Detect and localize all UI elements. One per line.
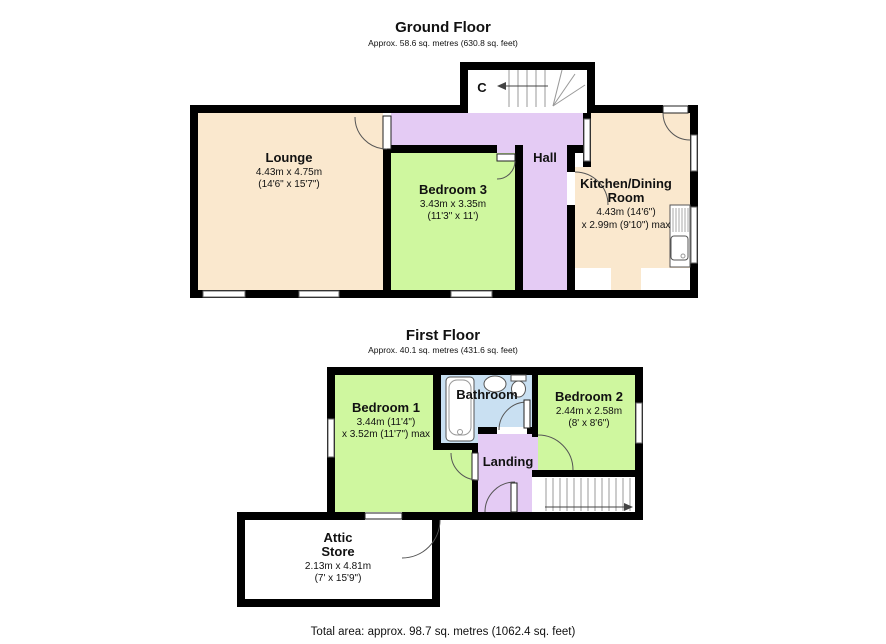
kitchen-room bbox=[591, 113, 690, 167]
window bbox=[691, 135, 697, 171]
bedroom-1-label: Bedroom 1 bbox=[352, 400, 420, 415]
attic-dims-imperial: (7' x 15'9") bbox=[315, 573, 362, 584]
bedroom-3-dims-imperial: (11'3" x 11') bbox=[428, 211, 479, 222]
bedroom-1-dims-imperial: x 3.52m (11'7") max bbox=[342, 429, 430, 440]
ground-floor-subtitle: Approx. 58.6 sq. metres (630.8 sq. feet) bbox=[368, 38, 518, 48]
door-leaf bbox=[524, 400, 530, 428]
lounge-dims-imperial: (14'6" x 15'7") bbox=[258, 179, 320, 190]
lounge-label: Lounge bbox=[266, 150, 313, 165]
first-floor-subtitle: Approx. 40.1 sq. metres (431.6 sq. feet) bbox=[368, 345, 518, 355]
attic-label-line2: Store bbox=[321, 544, 354, 559]
first-floor-title: First Floor bbox=[406, 327, 480, 344]
floorplan-svg: Ground Floor Approx. 58.6 sq. metres (63… bbox=[0, 0, 886, 644]
bedroom-3-label: Bedroom 3 bbox=[419, 182, 487, 197]
ground-floor: Ground Floor Approx. 58.6 sq. metres (63… bbox=[190, 19, 698, 298]
attic-dims-metric: 2.13m x 4.81m bbox=[305, 561, 371, 572]
bedroom-1-dims-metric: 3.44m (11'4") bbox=[357, 417, 416, 428]
kitchen-dims-metric: 4.43m (14'6") bbox=[596, 207, 655, 218]
hall-corridor bbox=[523, 153, 567, 290]
bedroom-2-dims-imperial: (8' x 8'6") bbox=[568, 418, 609, 429]
door-leaf bbox=[383, 116, 391, 149]
window bbox=[299, 291, 339, 297]
staircase-first bbox=[538, 477, 635, 512]
bedroom-2-label: Bedroom 2 bbox=[555, 389, 623, 404]
window bbox=[691, 207, 697, 263]
first-floor: First Floor Approx. 40.1 sq. metres (431… bbox=[237, 327, 643, 607]
kitchen-label-line1: Kitchen/Dining bbox=[580, 176, 672, 191]
window bbox=[203, 291, 245, 297]
kitchen-counter bbox=[670, 205, 690, 267]
door-leaf bbox=[365, 513, 402, 519]
attic-label-line1: Attic bbox=[324, 530, 353, 545]
bedroom-3-dims-metric: 3.43m x 3.35m bbox=[420, 199, 486, 210]
cupboard-label: C bbox=[477, 80, 487, 95]
lounge-dims-metric: 4.43m x 4.75m bbox=[256, 167, 322, 178]
total-area-text: Total area: approx. 98.7 sq. metres (106… bbox=[311, 626, 576, 638]
window bbox=[584, 119, 590, 161]
door-leaf bbox=[472, 453, 478, 480]
window bbox=[636, 403, 642, 443]
kitchen-label-line2: Room bbox=[608, 190, 645, 205]
bathroom-label: Bathroom bbox=[456, 387, 517, 402]
door-leaf bbox=[511, 483, 517, 512]
landing-room bbox=[478, 434, 532, 512]
ground-floor-title: Ground Floor bbox=[395, 19, 491, 36]
hall-label: Hall bbox=[533, 150, 557, 165]
landing-label: Landing bbox=[483, 454, 534, 469]
toilet bbox=[511, 375, 526, 381]
bedroom-2-dims-metric: 2.44m x 2.58m bbox=[556, 406, 622, 417]
window bbox=[328, 419, 334, 457]
door-leaf bbox=[497, 154, 515, 161]
kitchen-room-notch bbox=[611, 268, 641, 290]
kitchen-dims-imperial: x 2.99m (9'10") max bbox=[582, 220, 671, 231]
window bbox=[451, 291, 492, 297]
door-leaf bbox=[663, 106, 688, 113]
bedroom-1-room bbox=[433, 450, 472, 512]
floorplan-canvas: Ground Floor Approx. 58.6 sq. metres (63… bbox=[0, 0, 886, 644]
bedroom-1-room bbox=[335, 375, 433, 512]
lounge-room bbox=[198, 113, 383, 290]
